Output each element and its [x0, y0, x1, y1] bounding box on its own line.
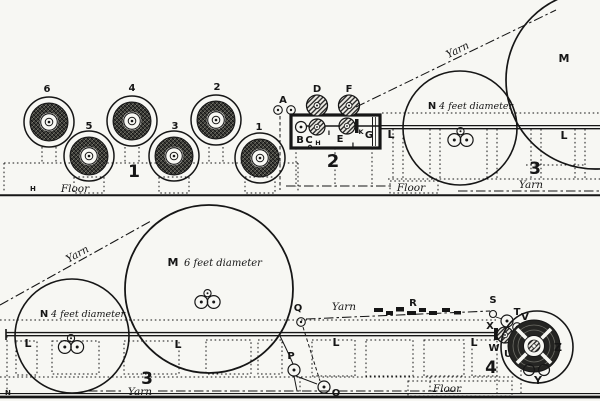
spool-2: [191, 95, 241, 145]
upper-drying-rail: [380, 113, 600, 129]
label-I: I: [328, 129, 330, 137]
creel-number: 1: [128, 162, 140, 182]
upper-left-mark: H: [30, 185, 36, 193]
label-A: A: [279, 95, 287, 106]
drum-N-lower-note: 4 feet diameter: [50, 309, 127, 320]
label-S: S: [489, 295, 496, 306]
label-D: D: [313, 84, 321, 95]
diagram-canvas: 6 5 4 3 2 1 1 Floor H A D F: [0, 0, 600, 401]
drum-N-lower-label: N: [40, 309, 48, 320]
guide-pulley-a1: [274, 106, 283, 115]
upper-yarn-floor-label: Yarn: [519, 179, 543, 191]
winder-number: 4: [485, 358, 497, 378]
gear-E: [339, 118, 355, 134]
label-Z: Z: [554, 341, 562, 354]
spool-6: [24, 97, 74, 147]
mid-yarn-label: Yarn: [332, 301, 356, 313]
spool-6-label: 6: [44, 84, 51, 95]
label-P: P: [287, 351, 294, 362]
spool-1-label: 1: [256, 122, 263, 133]
label-B: B: [296, 135, 304, 146]
lower-rail-label-3: L: [332, 336, 339, 349]
label-K: K: [358, 128, 364, 136]
lower-rail-label-4: L: [470, 336, 477, 349]
drum-M-lower: [125, 205, 293, 373]
machine-number: 2: [327, 151, 340, 172]
creel-spools: 6 5 4 3 2 1: [24, 82, 285, 183]
spool-3: [149, 131, 199, 181]
lower-rail-label-1: L: [24, 337, 31, 350]
pulley-D: [307, 95, 328, 116]
gear-C: [309, 119, 325, 135]
guide-pulley-P: [288, 364, 300, 376]
spool-4: [107, 96, 157, 146]
label-G: G: [365, 130, 373, 141]
label-R: R: [409, 298, 417, 309]
guide-pulley-Q: [297, 318, 306, 327]
label-C: C: [305, 135, 312, 146]
spool-5: [64, 131, 114, 181]
upper-rail-label-right: L: [560, 129, 567, 142]
label-Q: Q: [294, 303, 303, 314]
upper-rail-number: 3: [529, 159, 541, 179]
drum-N-upper-label: N: [428, 101, 436, 112]
spool-4-label: 4: [129, 83, 136, 94]
yarn-drying-machinery-engraving: 6 5 4 3 2 1 1 Floor H A D F: [0, 0, 600, 401]
label-X: X: [486, 321, 494, 332]
spool-2-label: 2: [214, 82, 221, 93]
lower-rail-label-2: L: [174, 338, 181, 351]
drum-N-upper-note: 4 feet diameter: [438, 101, 515, 112]
spool-3-label: 3: [172, 121, 179, 132]
label-F: F: [346, 84, 353, 95]
rail-trolley-N: [58, 335, 83, 354]
label-J: J: [351, 141, 354, 149]
label-Y: Y: [533, 374, 543, 387]
label-H: H: [315, 139, 320, 147]
label-E: E: [337, 134, 344, 145]
upper-floor-label-right: Floor: [396, 182, 426, 194]
upper-elevation: 6 5 4 3 2 1 1 Floor H A D F: [0, 0, 600, 195]
lower-yarn-label: Yarn: [64, 243, 91, 265]
guide-eye-S: [490, 311, 497, 318]
drum-M-upper-label: M: [559, 52, 570, 65]
label-W: W: [488, 343, 499, 354]
guide-pulley-a2: [287, 106, 296, 115]
lower-elevation: Yarn M 6 feet diameter N 4 feet diameter: [0, 205, 600, 399]
pulley-F: [339, 95, 360, 116]
drum-M-upper: [506, 0, 600, 169]
rail-trolley-upper: [448, 128, 473, 147]
roller-B-axle: [300, 126, 303, 129]
spool-5-label: 5: [86, 121, 93, 132]
winding-machine: X W U 4 Z Y: [485, 311, 573, 387]
spool-1: [235, 133, 285, 183]
drum-M-lower-label: M: [168, 256, 179, 269]
sizing-machine: A D F B C H I E J K G L 2: [274, 84, 395, 190]
upper-floor-label-left: Floor: [60, 183, 90, 195]
drum-M-lower-note: 6 feet diameter: [184, 258, 263, 269]
rail-trolley-M: [195, 290, 220, 309]
